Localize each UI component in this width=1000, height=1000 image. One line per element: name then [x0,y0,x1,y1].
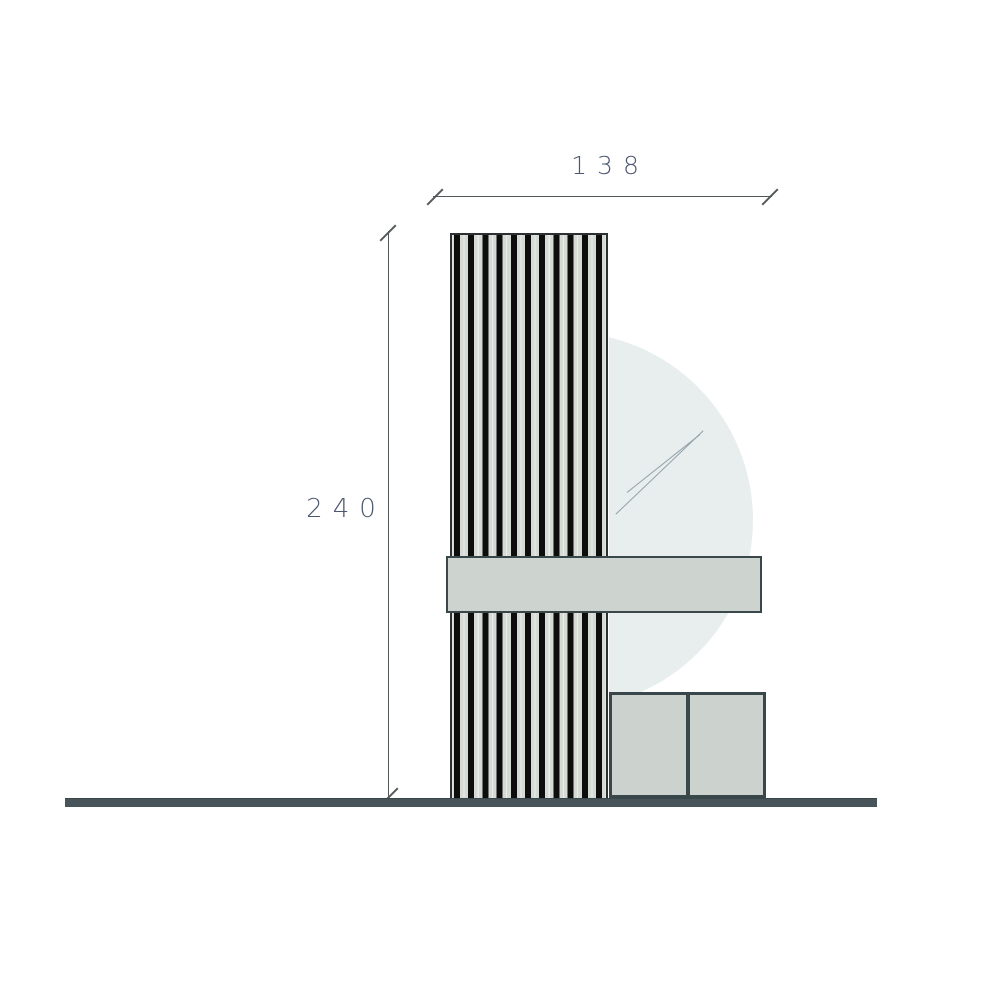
height-dimension-label: 240 [256,494,426,524]
cabinet-door-right [686,695,764,795]
floor-line [65,798,877,807]
cabinet [609,692,766,798]
cabinet-door-left [612,695,686,795]
width-dimension-label: 138 [520,151,690,180]
width-dimension-tick-right [762,189,779,206]
elevation-drawing: 138 240 [0,0,1000,1000]
slat-panel [450,233,608,799]
height-dimension-line [388,231,389,798]
shelf [446,556,762,613]
width-dimension-line [433,196,772,197]
width-dimension-tick-left [427,189,444,206]
